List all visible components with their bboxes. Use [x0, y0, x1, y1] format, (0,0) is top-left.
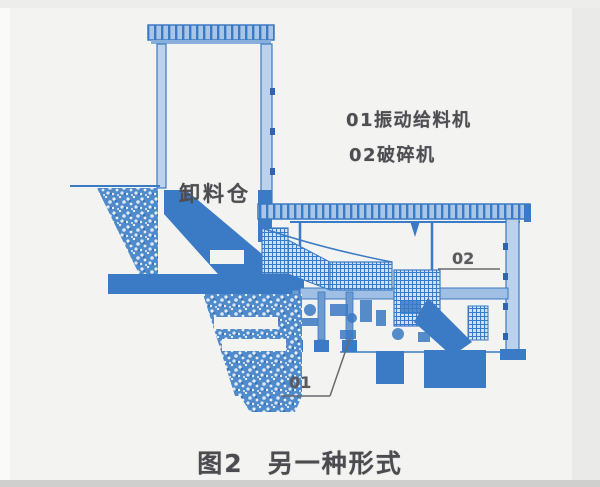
- paper-edge-right: [572, 0, 600, 487]
- legend-item-1: 01振动给料机: [346, 106, 472, 132]
- figure-caption: 图2另一种形式: [0, 444, 600, 480]
- legend-item-2: 02破碎机: [349, 141, 436, 167]
- figure-scan: 01振动给料机 02破碎机 卸料仓 02 01 图2另一种形式: [0, 0, 600, 487]
- blueprint-drawing: [0, 0, 600, 487]
- callout-02: 02: [452, 249, 474, 268]
- right-wall-footing: [500, 349, 526, 360]
- paper-edge-bottom: [0, 480, 600, 487]
- paper-edge-left: [0, 0, 10, 487]
- figure-title: 另一种形式: [268, 449, 403, 478]
- callout-01: 01: [289, 373, 311, 392]
- paper-edge-top: [0, 0, 600, 8]
- figure-number: 图2: [197, 449, 243, 478]
- hopper-label: 卸料仓: [179, 178, 251, 208]
